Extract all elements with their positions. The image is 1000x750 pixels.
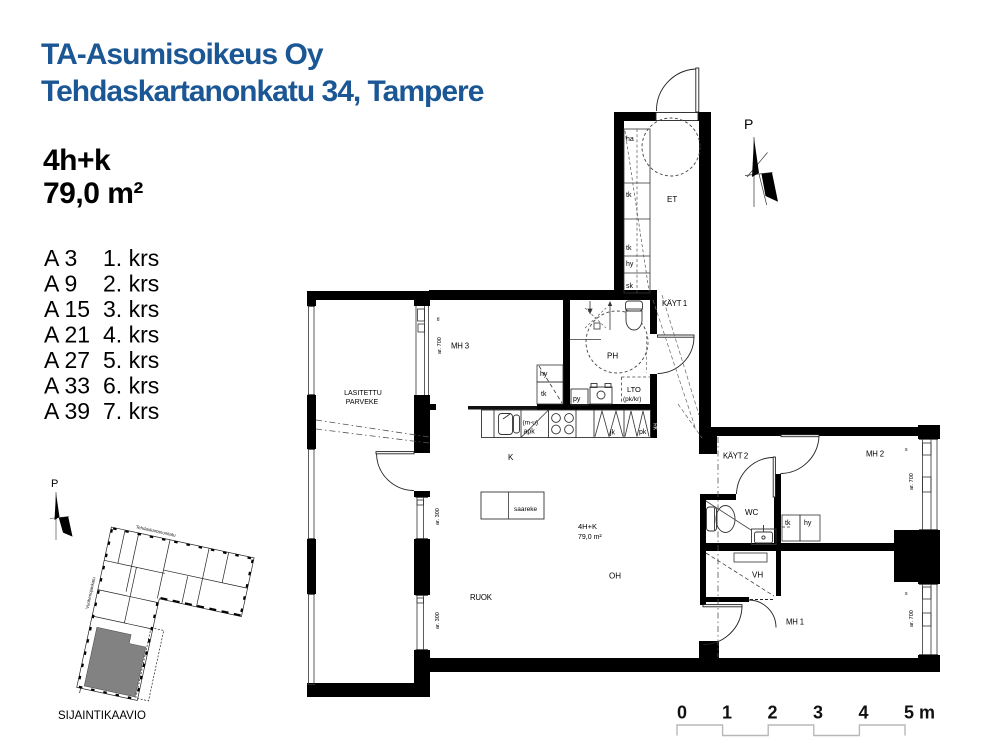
svg-text:ha: ha	[626, 136, 634, 143]
svg-text:Tehdaskartanonkatu: Tehdaskartanonkatu	[135, 524, 176, 538]
svg-text:A 9: A 9	[44, 271, 77, 297]
svg-text:ET: ET	[667, 195, 677, 204]
svg-text:RK: RK	[652, 423, 658, 431]
svg-text:apk: apk	[524, 429, 536, 436]
svg-text:OH: OH	[609, 572, 621, 581]
svg-text:MH 2: MH 2	[866, 450, 884, 459]
svg-text:tk: tk	[541, 391, 547, 398]
svg-text:3. krs: 3. krs	[103, 296, 159, 322]
svg-text:4: 4	[858, 703, 868, 723]
svg-text:7. krs: 7. krs	[103, 398, 159, 424]
svg-text:tk: tk	[626, 245, 632, 252]
svg-text:P: P	[744, 116, 753, 132]
svg-text:jk: jk	[609, 430, 616, 437]
svg-text:A 21: A 21	[44, 322, 90, 348]
svg-text:ar. 700: ar. 700	[437, 337, 443, 354]
svg-text:tk: tk	[785, 520, 791, 527]
svg-text:1. krs: 1. krs	[103, 245, 159, 271]
svg-text:ar. 700: ar. 700	[909, 610, 915, 627]
svg-text:s: s	[905, 447, 908, 453]
svg-text:KÄYT 1: KÄYT 1	[662, 299, 687, 308]
svg-text:saareke: saareke	[514, 506, 538, 513]
svg-text:1: 1	[722, 703, 732, 723]
svg-text:LTO: LTO	[627, 385, 641, 394]
svg-text:tk: tk	[626, 192, 632, 199]
svg-text:2. krs: 2. krs	[103, 271, 159, 297]
svg-text:(m-u): (m-u)	[523, 420, 539, 427]
svg-text:4h+k: 4h+k	[43, 144, 111, 177]
svg-text:LASITETTU: LASITETTU	[344, 390, 382, 397]
svg-text:A 3: A 3	[44, 245, 77, 271]
svg-text:hy: hy	[540, 371, 548, 378]
svg-text:79,0 m²: 79,0 m²	[578, 534, 602, 541]
svg-text:MH 1: MH 1	[786, 618, 804, 627]
svg-text:A 39: A 39	[44, 398, 90, 424]
svg-text:79,0 m²: 79,0 m²	[43, 177, 143, 210]
svg-text:s: s	[905, 591, 908, 597]
svg-text:PARVEKE: PARVEKE	[346, 399, 379, 406]
svg-text:hy: hy	[804, 520, 812, 527]
svg-text:4. krs: 4. krs	[103, 322, 159, 348]
svg-text:SIJAINTIKAAVIO: SIJAINTIKAAVIO	[58, 710, 146, 722]
svg-text:KÄYT 2: KÄYT 2	[723, 452, 748, 461]
svg-text:RUOK: RUOK	[470, 593, 493, 602]
svg-text:py: py	[573, 396, 581, 403]
svg-text:3: 3	[813, 703, 823, 723]
svg-text:hy: hy	[626, 261, 634, 268]
svg-text:P: P	[51, 478, 58, 490]
svg-text:TA-Asumisoikeus Oy: TA-Asumisoikeus Oy	[41, 38, 324, 71]
svg-text:ar. 300: ar. 300	[435, 508, 441, 525]
svg-text:WC: WC	[745, 508, 759, 517]
svg-text:A 33: A 33	[44, 373, 90, 399]
svg-text:6. krs: 6. krs	[103, 373, 159, 399]
svg-text:MH 3: MH 3	[451, 342, 469, 351]
svg-text:(pk/kr): (pk/kr)	[623, 396, 641, 403]
svg-text:5 m: 5 m	[904, 703, 935, 723]
svg-text:tl: tl	[437, 317, 440, 323]
svg-text:4H+K: 4H+K	[578, 522, 597, 531]
svg-text:VH: VH	[752, 571, 763, 580]
svg-text:sk: sk	[626, 283, 634, 290]
svg-text:A 27: A 27	[44, 347, 90, 373]
svg-text:pk: pk	[639, 429, 647, 436]
svg-text:K: K	[508, 453, 514, 462]
svg-text:2: 2	[767, 703, 777, 723]
svg-text:ar. 700: ar. 700	[909, 473, 915, 490]
svg-text:5. krs: 5. krs	[103, 347, 159, 373]
svg-text:ar. 300: ar. 300	[435, 612, 441, 629]
svg-text:Tehdaskartanonkatu 34, Tampere: Tehdaskartanonkatu 34, Tampere	[41, 75, 484, 108]
svg-text:PH: PH	[607, 352, 618, 361]
svg-text:0: 0	[677, 703, 687, 723]
svg-text:A 15: A 15	[44, 296, 90, 322]
